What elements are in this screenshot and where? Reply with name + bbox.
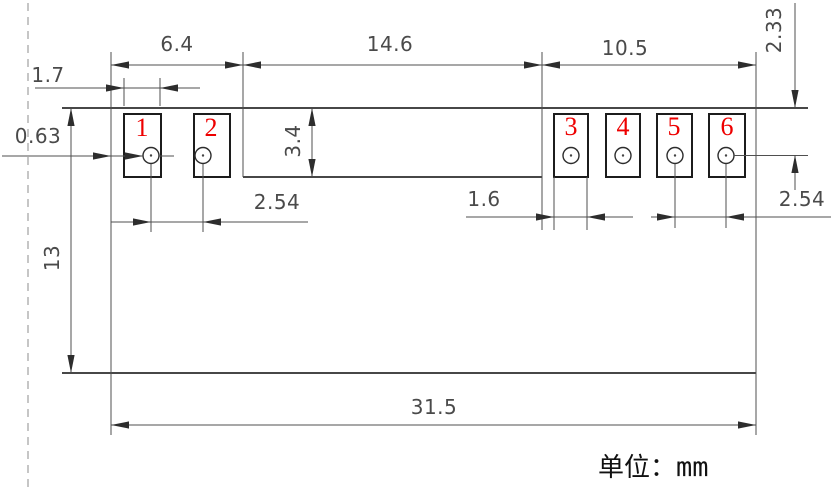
unit-note-value: mm <box>676 452 709 483</box>
dim-right-group-width-label: 10.5 <box>602 38 649 58</box>
dim-pad1-width-label: 1.7 <box>31 65 64 85</box>
pin-number-2: 2 <box>205 115 218 141</box>
pin-number-1: 1 <box>136 115 149 141</box>
dim-middle-width-label: 14.6 <box>367 34 414 54</box>
pin-number-4: 4 <box>617 114 630 140</box>
unit-note-label: 单位： <box>598 453 676 483</box>
dim-pad-right-width-label: 1.6 <box>467 189 500 209</box>
dim-left-group-width-label: 6.4 <box>160 34 193 54</box>
pin-holes <box>143 148 734 164</box>
pin-number-5: 5 <box>668 114 681 140</box>
pin-number-3: 3 <box>565 114 578 140</box>
dim-pitch-right-label: 2.54 <box>779 189 826 209</box>
dim-pitch-left-label: 2.54 <box>254 192 301 212</box>
unit-note: 单位：mm <box>598 453 709 483</box>
dim-edge-offset-label: 0.63 <box>15 126 62 146</box>
technical-drawing: 6.4 14.6 10.5 1.7 0.63 3.4 13 2.33 2.54 … <box>0 0 836 490</box>
dim-body-width-label: 31.5 <box>411 397 458 417</box>
dim-body-height-label: 13 <box>42 245 62 271</box>
dim-recess-depth-label: 3.4 <box>283 124 303 157</box>
dim-hole-row-offset-label: 2.33 <box>764 7 784 54</box>
body-outline <box>62 108 808 373</box>
pin-number-6: 6 <box>721 114 734 140</box>
